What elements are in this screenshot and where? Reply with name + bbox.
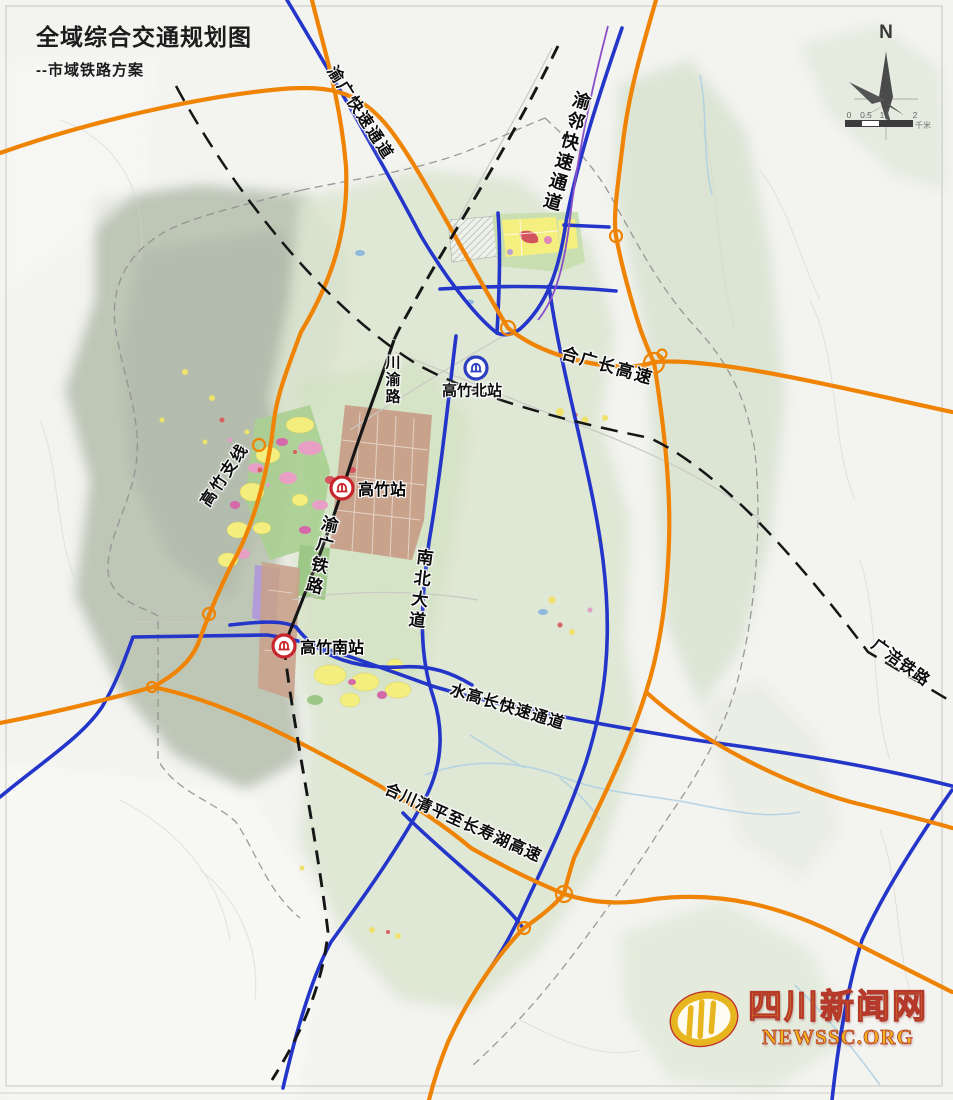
scale-tick-05: 0.5 [860,110,872,120]
station-label-gaozhu-north: 高竹北站 [442,380,502,401]
rail-station-icon-red [271,633,297,659]
title-block: 全域综合交通规划图 --市域铁路方案 [36,18,252,80]
rail-station-icon-red [329,475,355,501]
logo-site-url: NEWSSC.ORG [762,1026,928,1048]
rail-station-icon-blue [463,355,489,381]
scale-bar: 0 0.5 1 2 千米 [845,110,937,127]
scale-tick-1: 1 [880,110,885,120]
logo-site-name: 四川新闻网 [748,990,928,1026]
compass-graphic [846,22,926,147]
scale-unit: 千米 [915,120,931,131]
station-label-gaozhu-south: 高竹南站 [300,634,364,658]
scale-tick-0: 0 [847,110,852,120]
label-chuanyu-road: 川渝路 [382,355,403,406]
station-gaozhu-north [463,355,489,381]
planning-map: 全域综合交通规划图 --市域铁路方案 渝广快速通道 渝邻快速通道 合广长高速 川… [0,0,953,1100]
road-east-link [564,225,609,227]
scale-ticks: 0 0.5 1 2 [845,110,937,120]
logo-emblem-icon [668,988,740,1050]
scale-tick-2: 2 [913,110,918,120]
map-canvas [0,0,953,1100]
logo-texts: 四川新闻网 NEWSSC.ORG [748,990,928,1048]
compass-rose: N [846,22,926,147]
road-bottom-right [832,790,952,1100]
terrain-layer [0,25,945,1100]
station-gaozhu-south: 高竹南站 [271,633,364,659]
site-logo: 四川新闻网 NEWSSC.ORG [668,988,928,1050]
map-subtitle: --市域铁路方案 [36,59,252,80]
map-title: 全域综合交通规划图 [36,18,252,52]
station-gaozhu: 高竹站 [329,475,406,501]
station-label-gaozhu: 高竹站 [358,476,406,500]
landuse-north-town [492,212,585,272]
scale-bar-graphic [845,120,913,127]
